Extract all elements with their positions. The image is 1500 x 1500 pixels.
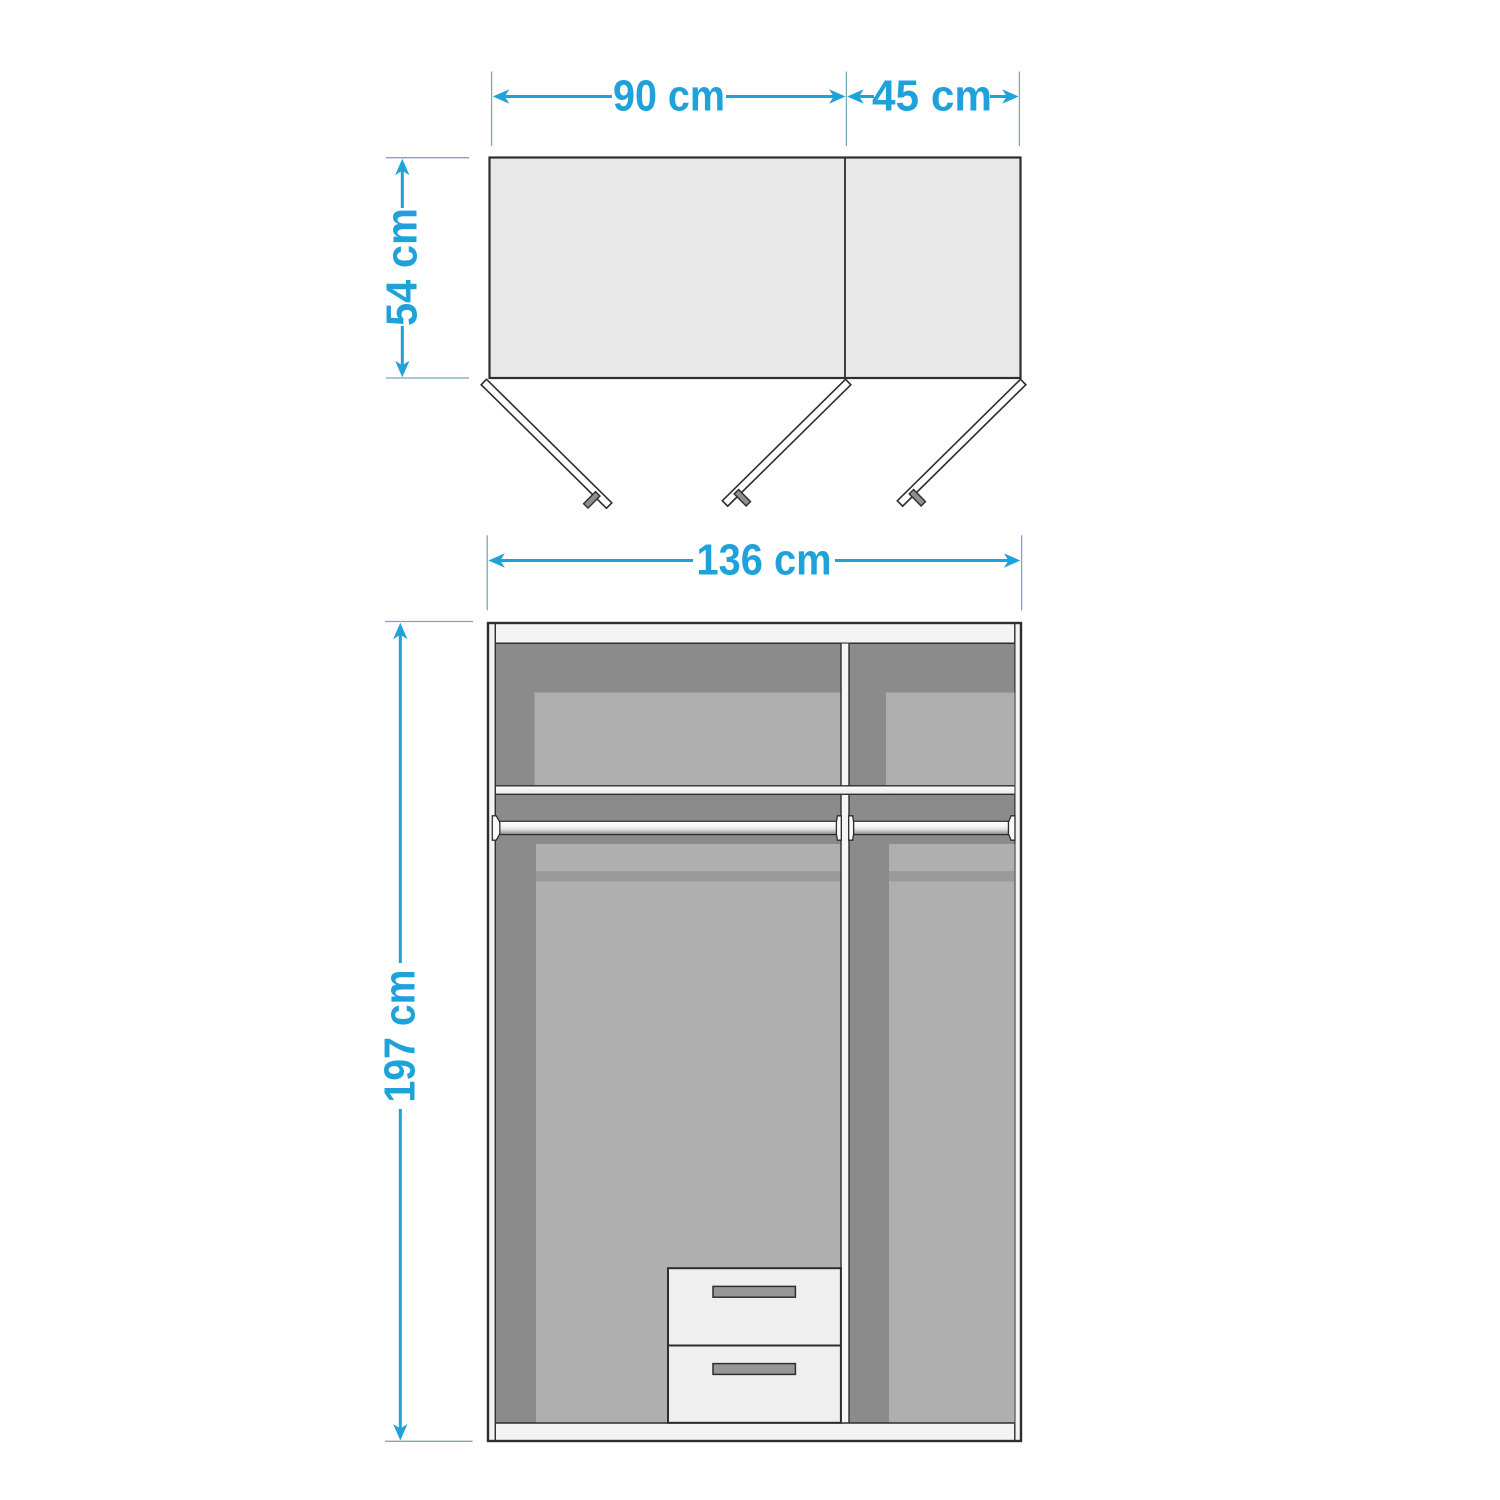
svg-text:45 cm: 45 cm: [872, 73, 992, 121]
svg-text:197 cm: 197 cm: [376, 970, 424, 1103]
svg-text:136 cm: 136 cm: [697, 537, 832, 585]
svg-text:90 cm: 90 cm: [613, 73, 725, 121]
svg-text:54 cm: 54 cm: [378, 208, 426, 326]
